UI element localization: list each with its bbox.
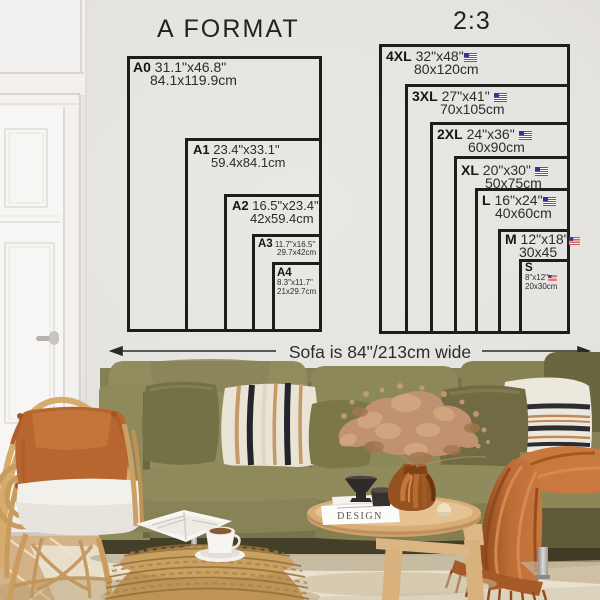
svg-text:DESIGN: DESIGN: [337, 511, 383, 522]
